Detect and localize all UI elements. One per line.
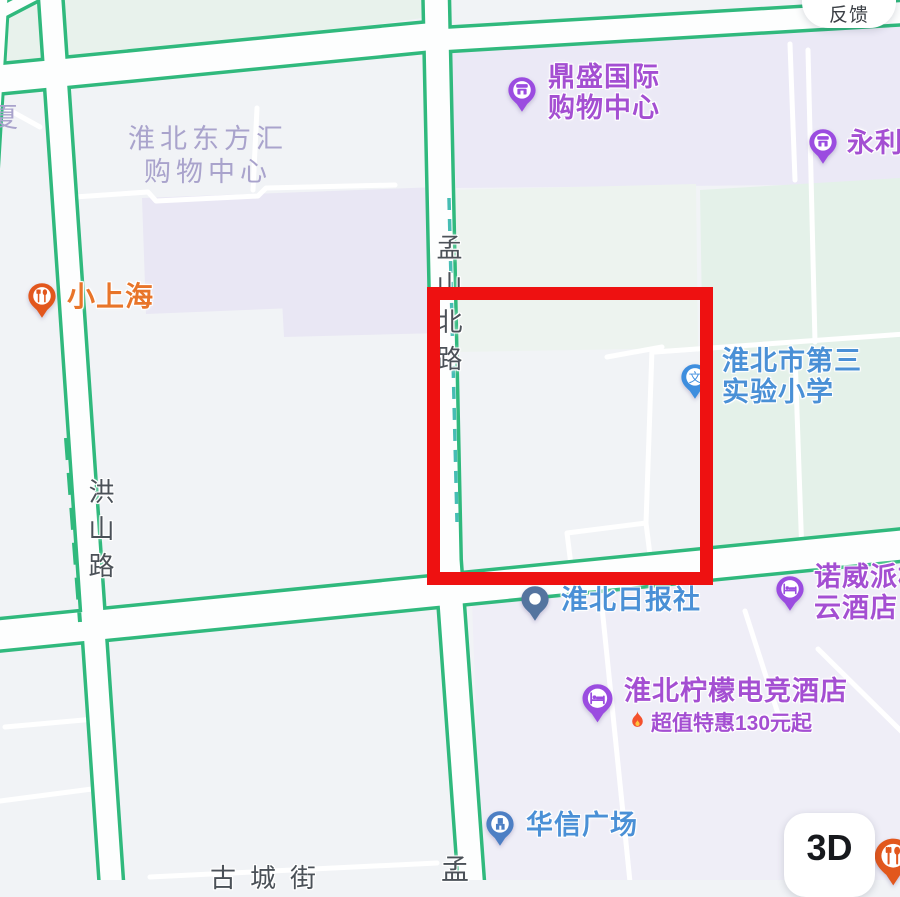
poi-pin-lemon[interactable] (581, 683, 614, 729)
poi-pin-xiaoshanghai[interactable] (27, 282, 57, 324)
poi-label-nuowei[interactable]: 诺威派柏云酒店 (814, 562, 900, 624)
poi-label-daily[interactable]: 淮北日报社 (561, 585, 701, 616)
poi-pin-daily[interactable] (520, 585, 550, 627)
poi-pin-yongli[interactable] (808, 128, 838, 170)
feedback-button-label: 反馈 (829, 0, 869, 27)
poi-label-line: 购物中心 (548, 93, 660, 124)
annotation-rectangle (427, 287, 713, 585)
poi-label-line: 淮北柠檬电竞酒店 (624, 676, 848, 707)
poi-promo-lemon[interactable]: 超值特惠130元起 (629, 707, 812, 737)
promo-text: 超值特惠130元起 (651, 707, 812, 737)
poi-label-line: 实验小学 (722, 377, 862, 408)
view-3d-button[interactable]: 3D (784, 813, 875, 897)
feedback-button[interactable]: 反馈 (802, 0, 896, 28)
poi-label-yongli[interactable]: 永利 (847, 128, 900, 159)
poi-label-line: 淮北日报社 (561, 585, 701, 616)
road-label-gucheng-street: 古城街 (210, 858, 330, 895)
poi-pin-huaxin[interactable] (485, 810, 515, 852)
poi-label-lemon[interactable]: 淮北柠檬电竞酒店 (624, 676, 848, 707)
poi-label-line: 小上海 (67, 281, 154, 312)
poi-label-line: 华信广场 (526, 810, 638, 841)
poi-pin-nuowei[interactable] (775, 575, 805, 617)
road-label-hongshan: 洪山路 (82, 478, 119, 589)
poi-label-line: 鼎盛国际 (548, 62, 660, 93)
poi-label-xiaoshanghai[interactable]: 小上海 (67, 281, 154, 312)
flame-icon (629, 710, 646, 735)
poi-label-huaxin[interactable]: 华信广场 (526, 810, 638, 841)
road-label-meng-partial: 孟 (441, 848, 469, 888)
view-3d-button-label: 3D (806, 813, 852, 883)
poi-label-school[interactable]: 淮北市第三实验小学 (722, 346, 862, 408)
poi-label-dingsheng[interactable]: 鼎盛国际购物中心 (548, 62, 660, 124)
poi-label-line: 诺威派柏 (814, 562, 900, 593)
poi-pin-dingsheng[interactable] (507, 76, 537, 118)
poi-pin-corner_food[interactable] (873, 837, 900, 892)
poi-label-line: 淮北市第三 (722, 346, 862, 377)
poi-label-line: 云酒店 (814, 593, 900, 624)
poi-label-line: 永利 (847, 128, 900, 159)
